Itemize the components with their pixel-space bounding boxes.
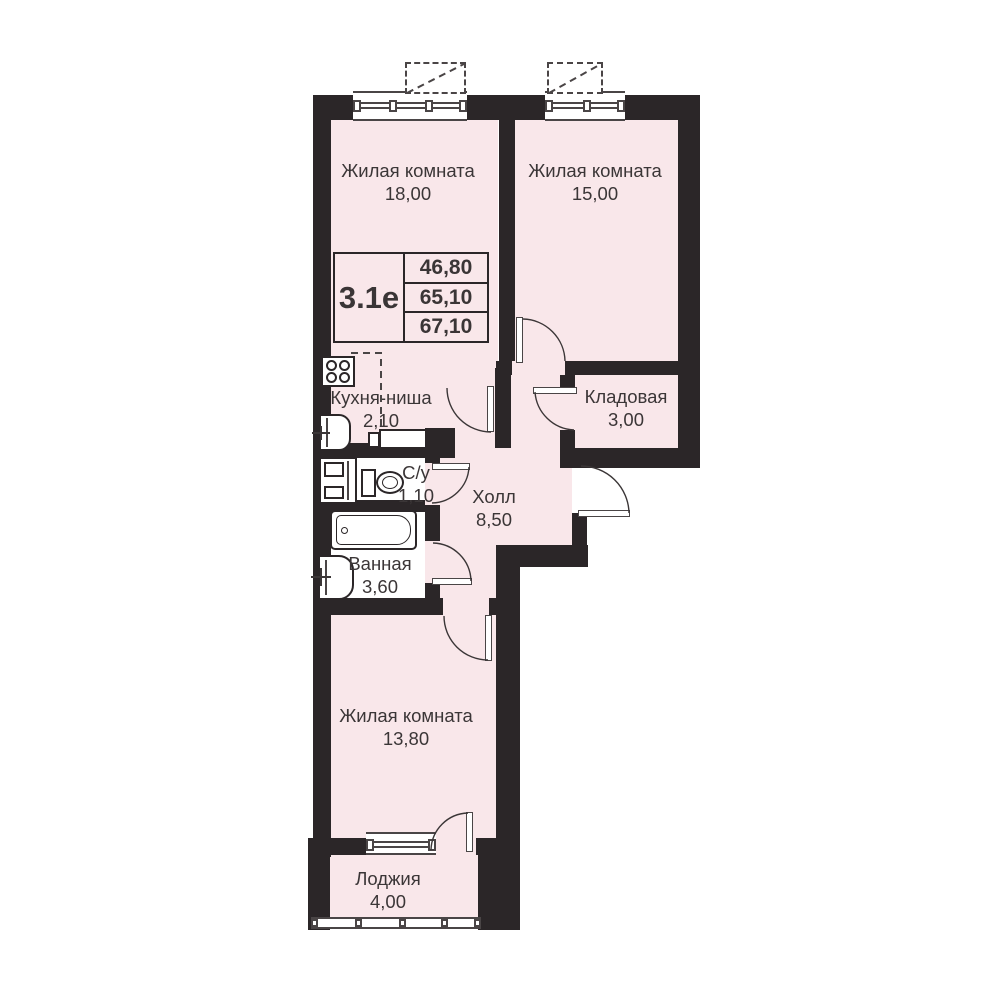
window-sill: [366, 841, 436, 848]
room-area: 1,10: [398, 484, 434, 507]
room-name: С/у: [398, 461, 434, 484]
sink-edge-line: [325, 560, 327, 595]
door-opening-storage: [560, 388, 575, 430]
wall-living13-right: [496, 545, 520, 855]
ac-unit-box: [405, 62, 466, 94]
unit-area-value-3: 67,10: [405, 311, 487, 341]
room-name: Жилая комната: [341, 159, 475, 182]
room-name: Лоджия: [355, 867, 421, 890]
room-area: 3,60: [348, 575, 411, 598]
door-leaf-bath: [432, 578, 472, 585]
room-label-kitchen-niche: Кухня-ниша 2,10: [330, 386, 431, 432]
floor-plan: 3.1е 46,80 65,10 67,10 Жилая комната 18,…: [0, 0, 1002, 1002]
room-area: 2,10: [330, 409, 431, 432]
window-mullion: [583, 100, 591, 112]
washer-divider-line: [347, 461, 349, 500]
unit-area-value-1: 46,80: [405, 254, 487, 282]
wall-between-living-rooms: [499, 106, 515, 368]
stove-burner: [339, 372, 350, 383]
vent-duct-small-icon: [368, 432, 380, 448]
window-mullion: [459, 100, 467, 112]
room-name: Ванная: [348, 552, 411, 575]
door-leaf-living15: [516, 317, 523, 363]
room-label-bath: Ванная 3,60: [348, 552, 411, 598]
window-mullion: [545, 100, 553, 112]
bathtub-drain: [341, 527, 348, 534]
window-mullion: [428, 839, 436, 851]
wall-loggia-right: [478, 838, 520, 930]
room-label-living-18: Жилая комната 18,00: [341, 159, 475, 205]
room-area: 15,00: [528, 182, 662, 205]
window-living18: [353, 91, 467, 121]
room-label-wc: С/у 1,10: [398, 461, 434, 507]
room-area-hall-lower: [432, 545, 498, 600]
door-opening-living13: [443, 598, 489, 615]
room-area: 8,50: [472, 508, 516, 531]
door-leaf-wc: [432, 463, 470, 470]
glazing-mullion: [441, 919, 448, 927]
stove-burner: [339, 360, 350, 371]
ac-unit-box: [547, 62, 603, 94]
window-mullion: [353, 100, 361, 112]
window-mullion: [366, 839, 374, 851]
door-leaf-balcony: [466, 812, 473, 852]
room-name: Холл: [472, 485, 516, 508]
glazing-mullion: [311, 919, 318, 927]
toilet-tank-icon: [361, 469, 376, 497]
toilet-bowl-inner: [382, 476, 398, 489]
door-opening-entrance: [572, 468, 587, 513]
unit-area-value-2: 65,10: [405, 282, 487, 312]
unit-area-values: 46,80 65,10 67,10: [403, 254, 487, 341]
window-mullion: [389, 100, 397, 112]
washer-cabinet-icon: [319, 457, 357, 504]
stove-burner: [326, 372, 337, 383]
room-area: 4,00: [355, 890, 421, 913]
bathtub-icon: [330, 510, 417, 550]
room-name: Кухня-ниша: [330, 386, 431, 409]
door-opening-living15: [512, 361, 565, 375]
glazing-mullion: [399, 919, 406, 927]
room-label-loggia: Лоджия 4,00: [355, 867, 421, 913]
room-label-hall: Холл 8,50: [472, 485, 516, 531]
room-name: Жилая комната: [339, 704, 473, 727]
room-label-living-15: Жилая комната 15,00: [528, 159, 662, 205]
stove-icon: [321, 356, 355, 387]
window-living15: [545, 91, 625, 121]
washer-drawer: [324, 486, 344, 499]
room-area: 3,00: [585, 408, 668, 431]
window-mullion: [425, 100, 433, 112]
wall-kitchen-east: [495, 368, 511, 448]
unit-code: 3.1е: [335, 254, 403, 341]
room-area-living-15: [512, 118, 678, 363]
door-opening-bath: [425, 541, 440, 583]
door-arc-entrance: [581, 466, 629, 513]
room-label-living-13: Жилая комната 13,80: [339, 704, 473, 750]
room-name: Кладовая: [585, 385, 668, 408]
vent-duct-icon: [379, 429, 427, 449]
stove-burner: [326, 360, 337, 371]
room-area: 13,80: [339, 727, 473, 750]
window-mullion: [617, 100, 625, 112]
window-sill: [353, 102, 467, 109]
wall-right: [678, 95, 700, 468]
room-name: Жилая комната: [528, 159, 662, 182]
door-leaf-entrance: [578, 510, 630, 517]
door-leaf-kitchen: [487, 386, 494, 432]
glazing-mullion: [474, 919, 481, 927]
window-living13-loggia: [366, 832, 436, 855]
room-area: 18,00: [341, 182, 475, 205]
door-leaf-living13: [485, 615, 492, 661]
washer-drawer: [324, 462, 344, 477]
glazing-mullion: [355, 919, 362, 927]
unit-info-table: 3.1е 46,80 65,10 67,10: [333, 252, 489, 343]
room-label-storage: Кладовая 3,00: [585, 385, 668, 431]
door-leaf-storage: [533, 387, 577, 394]
loggia-glazing: [311, 917, 481, 929]
sink-edge-line: [326, 418, 328, 447]
